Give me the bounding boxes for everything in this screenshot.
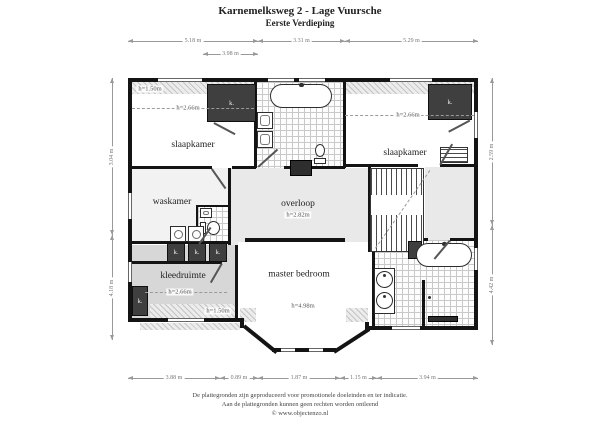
knee-wall-note-kleedruimte: h=1.50m: [204, 308, 231, 315]
footer-credit: © www.objectenzo.nl: [0, 410, 600, 419]
drain-dot: [383, 295, 386, 298]
dim-left-2-label: 4.18 m: [109, 277, 115, 298]
ceiling-note-bedroom-left: h=2.66m: [174, 105, 201, 112]
closet-row-2: k.: [188, 243, 206, 262]
knee-wall-hatch-master-right: [346, 308, 368, 322]
dim-top-2: 3.31 m: [258, 41, 345, 42]
dim-bottom-2: 0.89 m: [220, 378, 258, 379]
dim-bottom-1: 3.88 m: [128, 378, 220, 379]
page-title: Karnemelksweg 2 - Lage Vuursche: [0, 5, 600, 17]
closet-row-1: k.: [167, 243, 185, 262]
dim-right-1: 2.59 m: [492, 78, 493, 225]
bathtub-top-icon: [270, 84, 332, 108]
window-top-2: [268, 78, 294, 82]
floorplan-page: Karnemelksweg 2 - Lage Vuursche Eerste V…: [0, 0, 600, 424]
dim-top-3: 5.29 m: [345, 41, 478, 42]
staircase: [370, 168, 424, 252]
window-bottom-left: [168, 318, 204, 322]
knee-wall-note-top-left: h=1.50m: [136, 86, 163, 93]
dim-bottom-3-label: 1.87 m: [289, 375, 310, 381]
dim-right-2: 4.42 m: [492, 225, 493, 345]
closet-label: k.: [216, 249, 221, 256]
window-top-3: [299, 78, 325, 82]
ceiling-note-bedroom-right: h=2.66m: [394, 112, 421, 119]
footer-disclaimer-2: Aan de plattegronden kunnen geen rechten…: [0, 401, 600, 410]
wall-waskamer-overloop: [228, 168, 231, 245]
exterior-wall-bottom-right: [365, 326, 478, 330]
window-bottom-right: [392, 326, 420, 330]
bay-window-glass-2: [309, 348, 323, 352]
window-right-1: [474, 112, 478, 138]
dim-top-3-label: 5.29 m: [401, 38, 422, 44]
dim-bottom-2-label: 0.89 m: [229, 375, 250, 381]
closet-label: k.: [195, 249, 200, 256]
window-top-4: [390, 78, 432, 82]
wall-kleedruimte-master: [235, 245, 238, 318]
dim-left-1: 3.04 m: [112, 78, 113, 235]
closet-label: k.: [229, 100, 234, 107]
window-left-1: [128, 193, 132, 219]
dim-top-inner-label: 3.98 m: [220, 51, 241, 57]
dim-bottom-1-label: 3.88 m: [164, 375, 185, 381]
drain-dot: [383, 274, 386, 277]
shower-head-icon: [428, 296, 431, 299]
faucet-icon: [299, 83, 304, 87]
room-label-kleedruimte: kleedruimte: [160, 271, 205, 281]
window-top-1: [158, 78, 202, 82]
dim-top-2-label: 3.31 m: [291, 38, 312, 44]
room-label-master-bedroom: master bedroom: [266, 270, 332, 281]
wall-shower-partition: [422, 280, 425, 326]
closet-kleedruimte: k.: [132, 286, 148, 316]
dim-top-inner: 3.98 m: [203, 54, 258, 55]
sink-bottom-2-icon: [376, 292, 393, 309]
dim-bottom-4: 1.15 m: [340, 378, 377, 379]
roof-edge-strip-bottom-left: [140, 323, 240, 330]
washing-machine-icon: [170, 226, 186, 242]
wall-bathT-bedroomR: [343, 82, 346, 168]
page-subtitle: Eerste Verdieping: [0, 18, 600, 28]
washer-drum: [174, 230, 183, 239]
wall-wc-top: [196, 205, 228, 207]
closet-label: k.: [138, 298, 143, 305]
sink-basin: [260, 134, 270, 145]
wall-bathT-overloop: [312, 166, 345, 169]
wall-bedroomL-waskamer: [132, 166, 212, 169]
dim-left-1-label: 3.04 m: [109, 146, 115, 167]
sink-basin: [260, 115, 270, 126]
room-label-waskamer: waskamer: [153, 197, 192, 207]
ceiling-note-master-bedroom: h=4.98m: [289, 303, 316, 310]
dim-bottom-5: 3.94 m: [377, 378, 478, 379]
window-right-2: [474, 248, 478, 270]
closet-label: k.: [448, 99, 453, 106]
dim-right-1-label: 2.59 m: [489, 141, 495, 162]
closet-label: k.: [174, 249, 179, 256]
ceiling-note-overloop: h=2.82m: [284, 212, 311, 219]
sink-top-1-icon: [257, 112, 273, 129]
wall-bathB-top-2: [450, 238, 474, 241]
toilet-top-tank-icon: [314, 158, 326, 164]
sink-top-2-icon: [257, 131, 273, 148]
footer-disclaimer-1: De plattegronden zijn geproduceerd voor …: [0, 392, 600, 401]
room-label-overloop: overloop: [281, 199, 315, 209]
room-label-slaapkamer-left: slaapkamer: [171, 140, 214, 150]
bay-window-glass-1: [281, 348, 295, 352]
closet-bedroom-left: k.: [207, 84, 256, 122]
dim-bottom-4-label: 1.15 m: [348, 375, 369, 381]
wall-overloop-master: [245, 238, 345, 242]
dim-left-2: 4.18 m: [112, 235, 113, 340]
sink-bottom-1-icon: [376, 271, 393, 288]
wall-bedroomL-overloop: [232, 166, 256, 169]
dim-bottom-5-label: 3.94 m: [417, 375, 438, 381]
wc-sink-icon: [200, 208, 212, 218]
ceiling-note-kleedruimte: h=2.66m: [166, 289, 193, 296]
doormat-bathroom-top: [290, 160, 312, 176]
shower-bench: [428, 316, 458, 322]
room-label-slaapkamer-right: slaapkamer: [383, 148, 426, 158]
dryer-drum: [192, 230, 201, 239]
dim-top-1-label: 5.18 m: [183, 38, 204, 44]
dim-bottom-3: 1.87 m: [258, 378, 340, 379]
wall-bedroomR-overloop-1: [345, 164, 418, 167]
dim-top-1: 5.18 m: [128, 41, 258, 42]
wall-bedroomR-overloop-2: [440, 164, 474, 167]
window-left-2: [128, 262, 132, 282]
sink-basin: [203, 211, 209, 215]
bay-window-wall-right: [333, 327, 370, 353]
dim-right-2-label: 4.42 m: [489, 275, 495, 296]
toilet-top-bowl-icon: [315, 144, 325, 157]
hall-right-floor: [425, 167, 474, 240]
closet-row-3: k.: [209, 243, 227, 262]
